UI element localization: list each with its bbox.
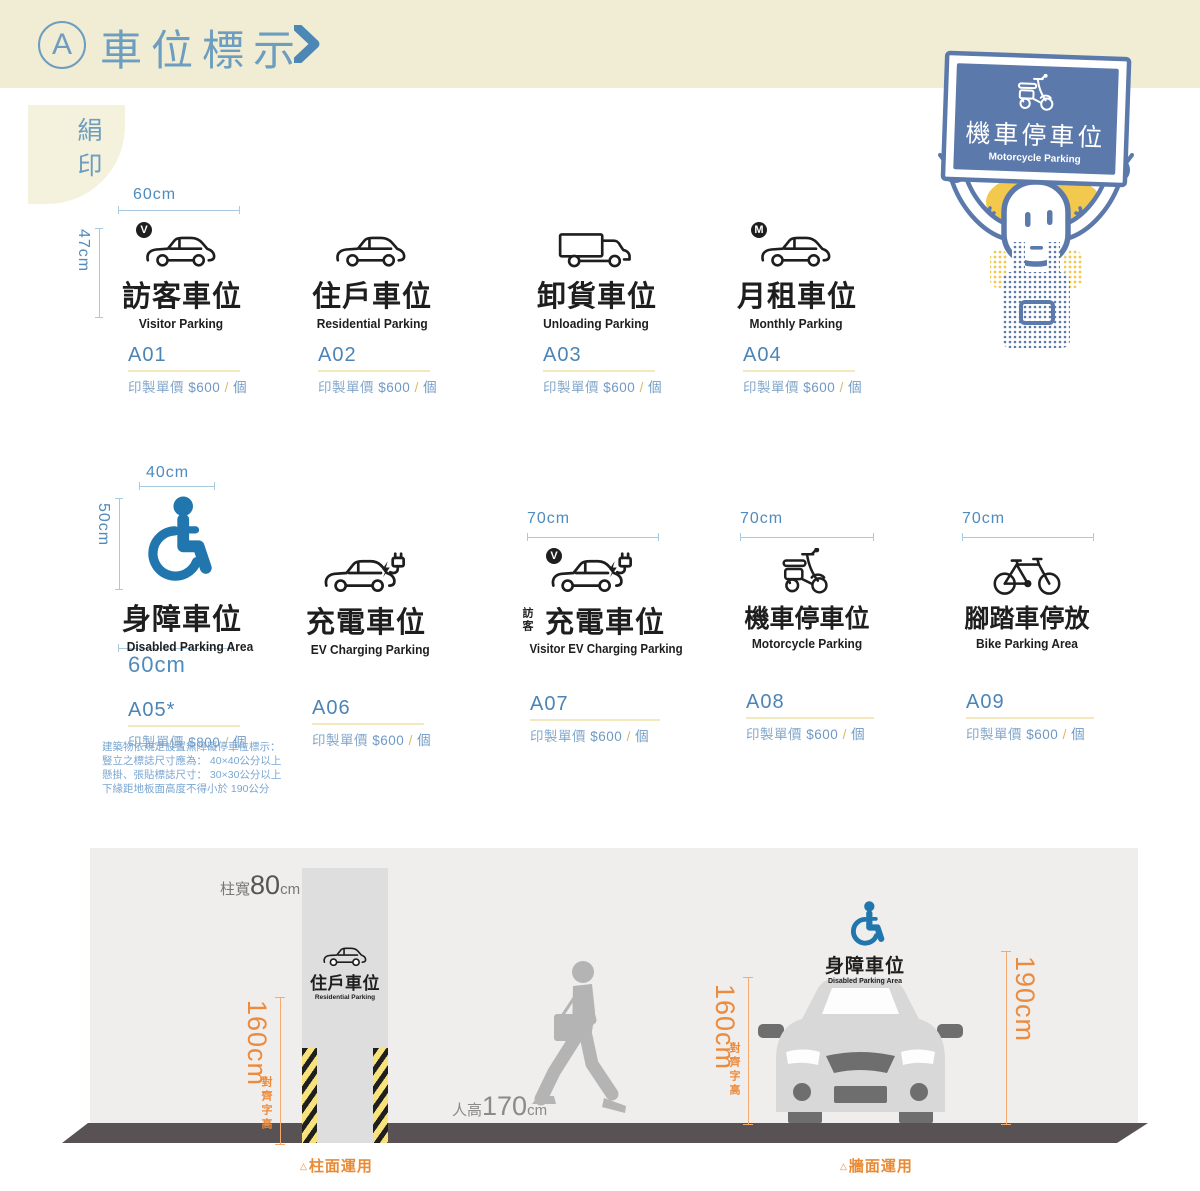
car-visitor-charging-icon: V xyxy=(524,546,660,596)
price-line: 印製單價 $600 / 個 xyxy=(740,723,874,743)
dim-line-47cm xyxy=(95,228,103,318)
price-line: 印製單價 $600 / 個 xyxy=(312,376,430,396)
car-monthly-icon: M xyxy=(737,220,855,270)
dim-note-wall: 對齊字高 xyxy=(726,1042,742,1098)
dim-line-70cm-a07 xyxy=(527,533,659,541)
item-code: A04 xyxy=(737,344,855,367)
sign-subtitle: EV Charging Parking xyxy=(311,642,420,657)
sign-title: 卸貨車位 xyxy=(537,273,655,315)
code-underline xyxy=(743,370,855,372)
price-line: 印製單價 $600 / 個 xyxy=(306,729,424,749)
sign-title: 充電車位 xyxy=(545,599,665,641)
sign-item-a05: 身障車位 Disabled Parking Area A05* 印製單價 $80… xyxy=(122,596,240,751)
mascot-sign-title: 機車停車位 xyxy=(965,120,1106,153)
sign-title: 住戶車位 xyxy=(312,273,430,315)
spec-sheet-page: A 車位標示 絹印 xyxy=(0,0,1200,1191)
sign-item-a07: V 訪客 充電車位 Visitor EV Charging Parking A0… xyxy=(524,546,660,745)
item-code: A02 xyxy=(312,344,430,367)
sign-subtitle: Visitor EV Charging Parking xyxy=(529,642,654,656)
hazard-stripe xyxy=(302,1048,317,1143)
mascot-illustration: 機車停車位 Motorcycle Parking xyxy=(928,50,1146,350)
sign-title: 月租車位 xyxy=(737,273,855,315)
item-code: A09 xyxy=(960,691,1094,714)
floor-strip xyxy=(55,1123,1155,1143)
caption-column-use: △柱面運用 xyxy=(300,1155,373,1176)
column-sign: 住戶車位 Residential Parking xyxy=(302,944,388,1001)
regulation-note: 建築物依規定設置無障礙停車位標示： 豎立之標誌尺寸應為： 40×40公分以上 懸… xyxy=(102,740,287,796)
sign-item-a03: 卸貨車位 Unloading Parking A03 印製單價 $600 / 個 xyxy=(537,220,655,396)
code-underline xyxy=(543,370,655,372)
dim-line-wall-160cm xyxy=(743,977,753,1125)
visitor-badge: V xyxy=(546,548,562,564)
dim-line-70cm-a09 xyxy=(962,533,1094,541)
price-line: 印製單價 $600 / 個 xyxy=(122,376,240,396)
sign-subtitle: Residential Parking xyxy=(317,316,426,331)
dim-label-70cm-a08: 70cm xyxy=(740,510,783,528)
item-code: A05* xyxy=(122,699,240,722)
dim-label-40cm: 40cm xyxy=(146,464,189,482)
sign-item-a04: M 月租車位 Monthly Parking A04 印製單價 $600 / 個 xyxy=(737,220,855,396)
dim-note-column: 對齊字高 xyxy=(258,1076,274,1132)
price-line: 印製單價 $600 / 個 xyxy=(737,376,855,396)
page-title: 車位標示 xyxy=(100,17,304,78)
dim-line-70cm-a08 xyxy=(740,533,874,541)
item-code: A01 xyxy=(122,344,240,367)
wall-sign-title: 身障車位 xyxy=(800,951,930,978)
visitor-badge: V xyxy=(136,222,152,238)
column-illustration: 住戶車位 Residential Parking xyxy=(302,868,388,1143)
chevron-right-icon xyxy=(294,25,320,63)
sign-title-prefix: 訪客 xyxy=(519,607,535,633)
car-visitor-icon: V xyxy=(122,220,240,270)
car-icon xyxy=(312,220,430,270)
sign-title: 腳踏車停放 xyxy=(960,599,1094,635)
dim-line-40cm xyxy=(139,482,215,490)
process-tab: 絹印 xyxy=(28,105,125,204)
sign-subtitle: Disabled Parking Area xyxy=(127,639,236,654)
dim-label-column-160cm: 160cm xyxy=(241,1000,272,1086)
dim-label-47cm: 47cm xyxy=(74,229,92,272)
dim-line-column-160cm xyxy=(275,997,285,1145)
hazard-stripe xyxy=(373,1048,388,1143)
sign-title: 機車停車位 xyxy=(740,599,874,635)
car-icon xyxy=(322,944,368,968)
column-sign-subtitle: Residential Parking xyxy=(302,994,388,1001)
price-line: 印製單價 $600 / 個 xyxy=(524,725,660,745)
item-code: A08 xyxy=(740,691,874,714)
wheelchair-icon xyxy=(137,496,213,590)
item-code: A07 xyxy=(524,693,660,716)
code-underline xyxy=(128,725,240,727)
process-tab-label: 絹印 xyxy=(70,117,106,187)
code-underline xyxy=(966,717,1094,719)
dim-line-50cm xyxy=(115,498,123,590)
sign-item-a08: 機車停車位 Motorcycle Parking A08 印製單價 $600 /… xyxy=(740,546,874,743)
sign-subtitle: Bike Parking Area xyxy=(965,636,1088,651)
sign-subtitle: Visitor Parking xyxy=(127,316,236,331)
sign-title: 身障車位 xyxy=(122,596,240,638)
monthly-badge: M xyxy=(751,222,767,238)
section-badge: A xyxy=(38,21,86,69)
sign-title: 充電車位 xyxy=(306,599,424,641)
sign-subtitle: Unloading Parking xyxy=(542,316,651,331)
sign-subtitle: Motorcycle Parking xyxy=(745,636,868,651)
column-sign-title: 住戶車位 xyxy=(302,969,388,994)
wall-sign-subtitle: Disabled Parking Area xyxy=(800,978,930,985)
caption-wall-use: △牆面運用 xyxy=(840,1155,913,1176)
item-code: A03 xyxy=(537,344,655,367)
dim-line-60cm xyxy=(118,206,240,214)
sign-item-a09: 腳踏車停放 Bike Parking Area A09 印製單價 $600 / … xyxy=(960,546,1094,743)
column-width-label: 柱寬80cm xyxy=(220,870,300,901)
mascot-sign: 機車停車位 Motorcycle Parking xyxy=(943,53,1129,185)
sign-title: 訪客車位 xyxy=(122,273,240,315)
scooter-icon xyxy=(740,546,874,596)
sign-item-a01: V 訪客車位 Visitor Parking A01 印製單價 $600 / 個 xyxy=(122,220,240,396)
car-front-illustration xyxy=(758,972,963,1123)
wall-sign: 身障車位 Disabled Parking Area xyxy=(800,901,930,985)
code-underline xyxy=(318,370,430,372)
code-underline xyxy=(530,719,660,721)
bicycle-icon xyxy=(960,546,1094,596)
price-line: 印製單價 $600 / 個 xyxy=(537,376,655,396)
code-underline xyxy=(746,717,874,719)
dim-label-70cm-a07: 70cm xyxy=(527,510,570,528)
code-underline xyxy=(312,723,424,725)
car-charging-icon xyxy=(306,546,424,596)
price-line: 印製單價 $600 / 個 xyxy=(960,723,1094,743)
truck-icon xyxy=(537,220,655,270)
item-code: A06 xyxy=(306,697,424,720)
person-height-label: 人高170cm xyxy=(452,1091,547,1122)
dim-label-50cm: 50cm xyxy=(94,503,112,546)
sign-subtitle: Monthly Parking xyxy=(742,316,851,331)
dim-label-60cm: 60cm xyxy=(133,186,176,204)
sign-item-a02: 住戶車位 Residential Parking A02 印製單價 $600 /… xyxy=(312,220,430,396)
code-row: A01 印製單價 $600 / 個 xyxy=(122,344,240,396)
dim-label-wall-190cm: 190cm xyxy=(1009,956,1040,1042)
sign-item-a06: 充電車位 EV Charging Parking A06 印製單價 $600 /… xyxy=(306,546,424,749)
code-underline xyxy=(128,370,240,372)
dim-label-70cm-a09: 70cm xyxy=(962,510,1005,528)
